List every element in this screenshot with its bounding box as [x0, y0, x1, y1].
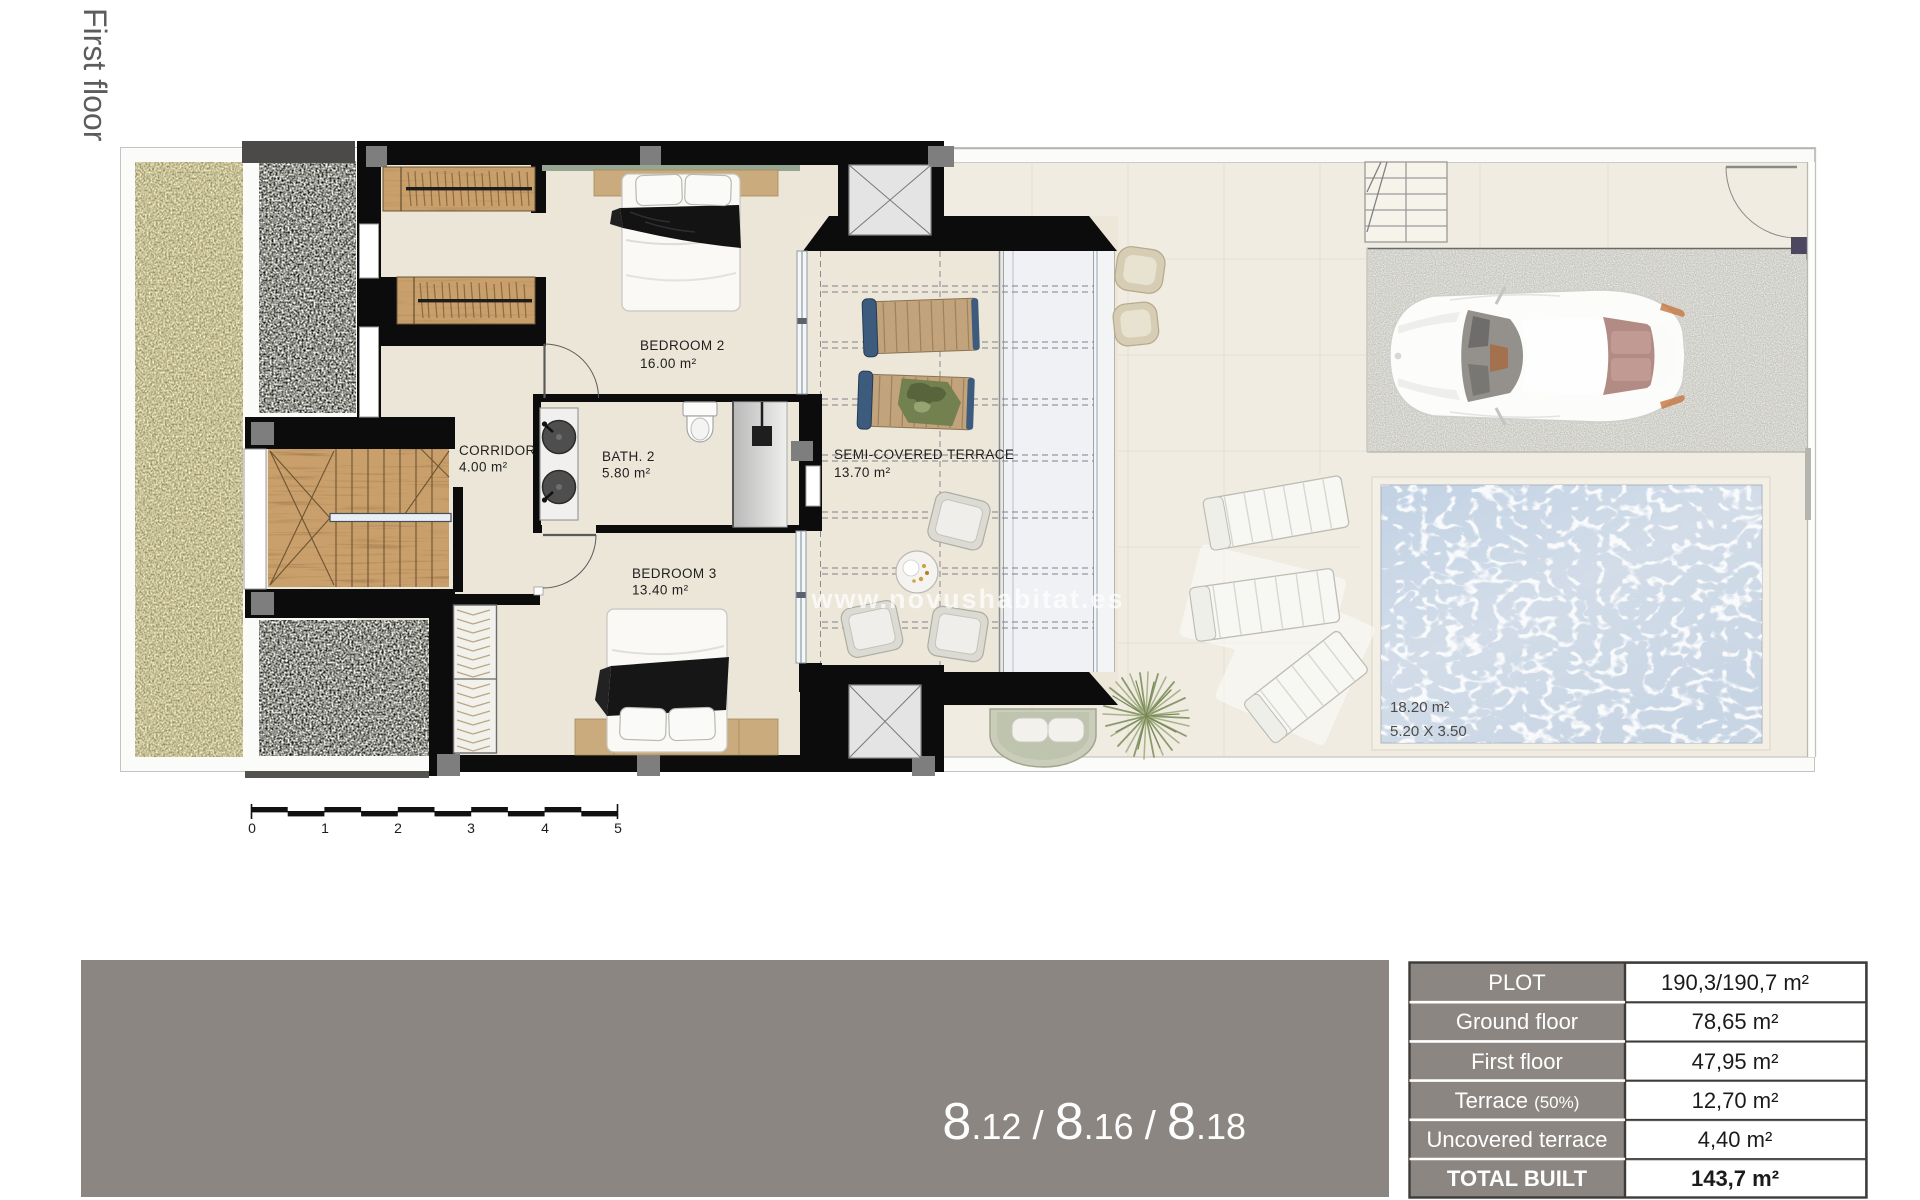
svg-text:4.00 m²: 4.00 m² [459, 460, 508, 475]
svg-text:BEDROOM 2: BEDROOM 2 [640, 338, 725, 353]
svg-text:47,95 m²: 47,95 m² [1692, 1049, 1779, 1074]
svg-text:143,7 m²: 143,7 m² [1691, 1166, 1779, 1191]
svg-text:16.00 m²: 16.00 m² [640, 356, 697, 371]
svg-text:5.80 m²: 5.80 m² [602, 466, 651, 481]
svg-text:1: 1 [321, 820, 329, 836]
svg-text:BATH. 2: BATH. 2 [602, 449, 655, 464]
svg-text:PLOT: PLOT [1488, 970, 1545, 995]
svg-text:3: 3 [467, 820, 475, 836]
svg-text:BEDROOM 3: BEDROOM 3 [632, 566, 717, 581]
svg-text:4,40 m²: 4,40 m² [1698, 1127, 1773, 1152]
svg-text:www.novushabitat.es: www.novushabitat.es [810, 584, 1124, 614]
svg-text:13.70 m²: 13.70 m² [834, 465, 891, 480]
svg-text:First floor: First floor [77, 8, 113, 142]
svg-text:0: 0 [248, 820, 256, 836]
svg-text:12,70 m²: 12,70 m² [1692, 1088, 1779, 1113]
svg-text:SEMI-COVERED TERRACE: SEMI-COVERED TERRACE [834, 447, 1014, 462]
svg-text:18.20 m²: 18.20 m² [1390, 699, 1449, 716]
svg-text:2: 2 [394, 820, 402, 836]
svg-text:190,3/190,7 m²: 190,3/190,7 m² [1661, 970, 1809, 995]
svg-text:13.40 m²: 13.40 m² [632, 583, 689, 598]
svg-text:5.20 X 3.50: 5.20 X 3.50 [1390, 723, 1467, 740]
svg-text:CORRIDOR: CORRIDOR [459, 443, 536, 458]
svg-text:5: 5 [614, 820, 622, 836]
svg-text:4: 4 [541, 820, 549, 836]
svg-text:Ground floor: Ground floor [1456, 1009, 1578, 1034]
svg-text:First floor: First floor [1471, 1049, 1563, 1074]
svg-text:78,65 m²: 78,65 m² [1692, 1009, 1779, 1034]
svg-text:TOTAL BUILT: TOTAL BUILT [1447, 1166, 1588, 1191]
svg-text:Uncovered terrace: Uncovered terrace [1427, 1127, 1608, 1152]
